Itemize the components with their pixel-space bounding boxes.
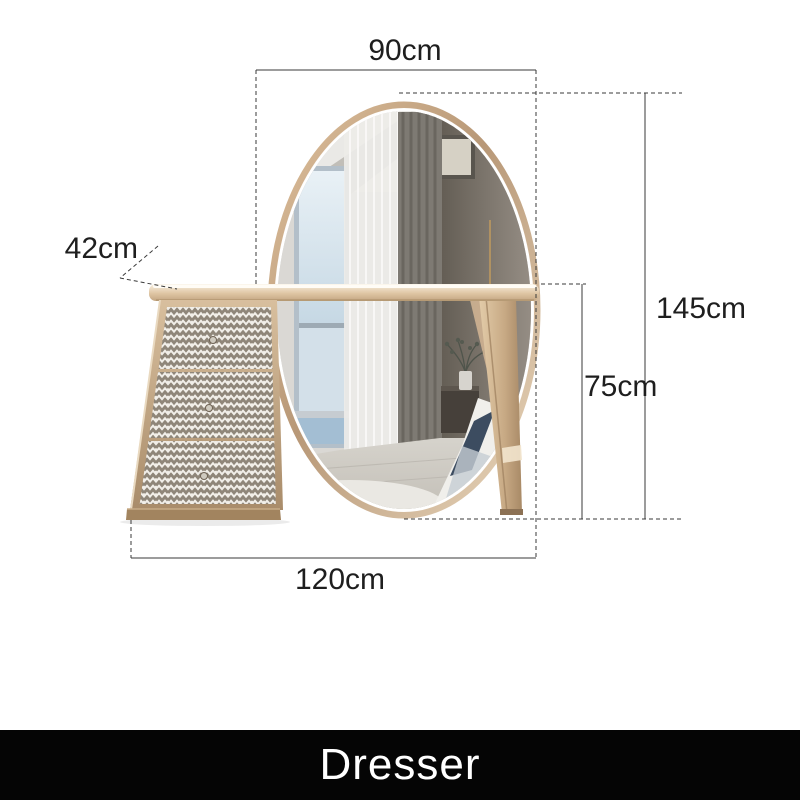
wall-niche-light — [439, 139, 471, 175]
label-total-height: 145cm — [656, 292, 746, 325]
plant-vase — [459, 371, 472, 390]
product-title: Dresser — [319, 740, 480, 790]
drawer-knob — [210, 337, 217, 344]
drawer-knob — [206, 405, 213, 412]
label-table-height: 75cm — [584, 370, 657, 403]
cabinet-plinth — [126, 509, 281, 520]
leg-foot — [500, 509, 523, 515]
dresser-diagram-canvas: 90cm 42cm 145cm 75cm 120cm — [0, 0, 800, 800]
sheer-curtain-folds — [350, 108, 398, 456]
tabletop-highlight — [153, 285, 536, 289]
window-mullion — [299, 323, 345, 328]
label-mirror-width: 90cm — [368, 34, 441, 67]
label-depth: 42cm — [65, 232, 138, 265]
vanity-tabletop — [149, 284, 539, 301]
sheer-curtain — [344, 106, 402, 460]
product-figure: 90cm 42cm 145cm 75cm 120cm Dresser — [0, 0, 800, 800]
reflection-window — [294, 166, 350, 448]
drawer-3 — [140, 441, 276, 504]
label-base-width: 120cm — [295, 563, 385, 596]
footer-bar: Dresser — [0, 730, 800, 800]
drawer-cabinet — [120, 300, 290, 526]
drawer-knob — [201, 473, 208, 480]
leg-highlight — [502, 445, 522, 463]
window-sill — [294, 411, 350, 418]
window-pane-lower — [299, 328, 345, 411]
floor-rug — [255, 480, 445, 532]
